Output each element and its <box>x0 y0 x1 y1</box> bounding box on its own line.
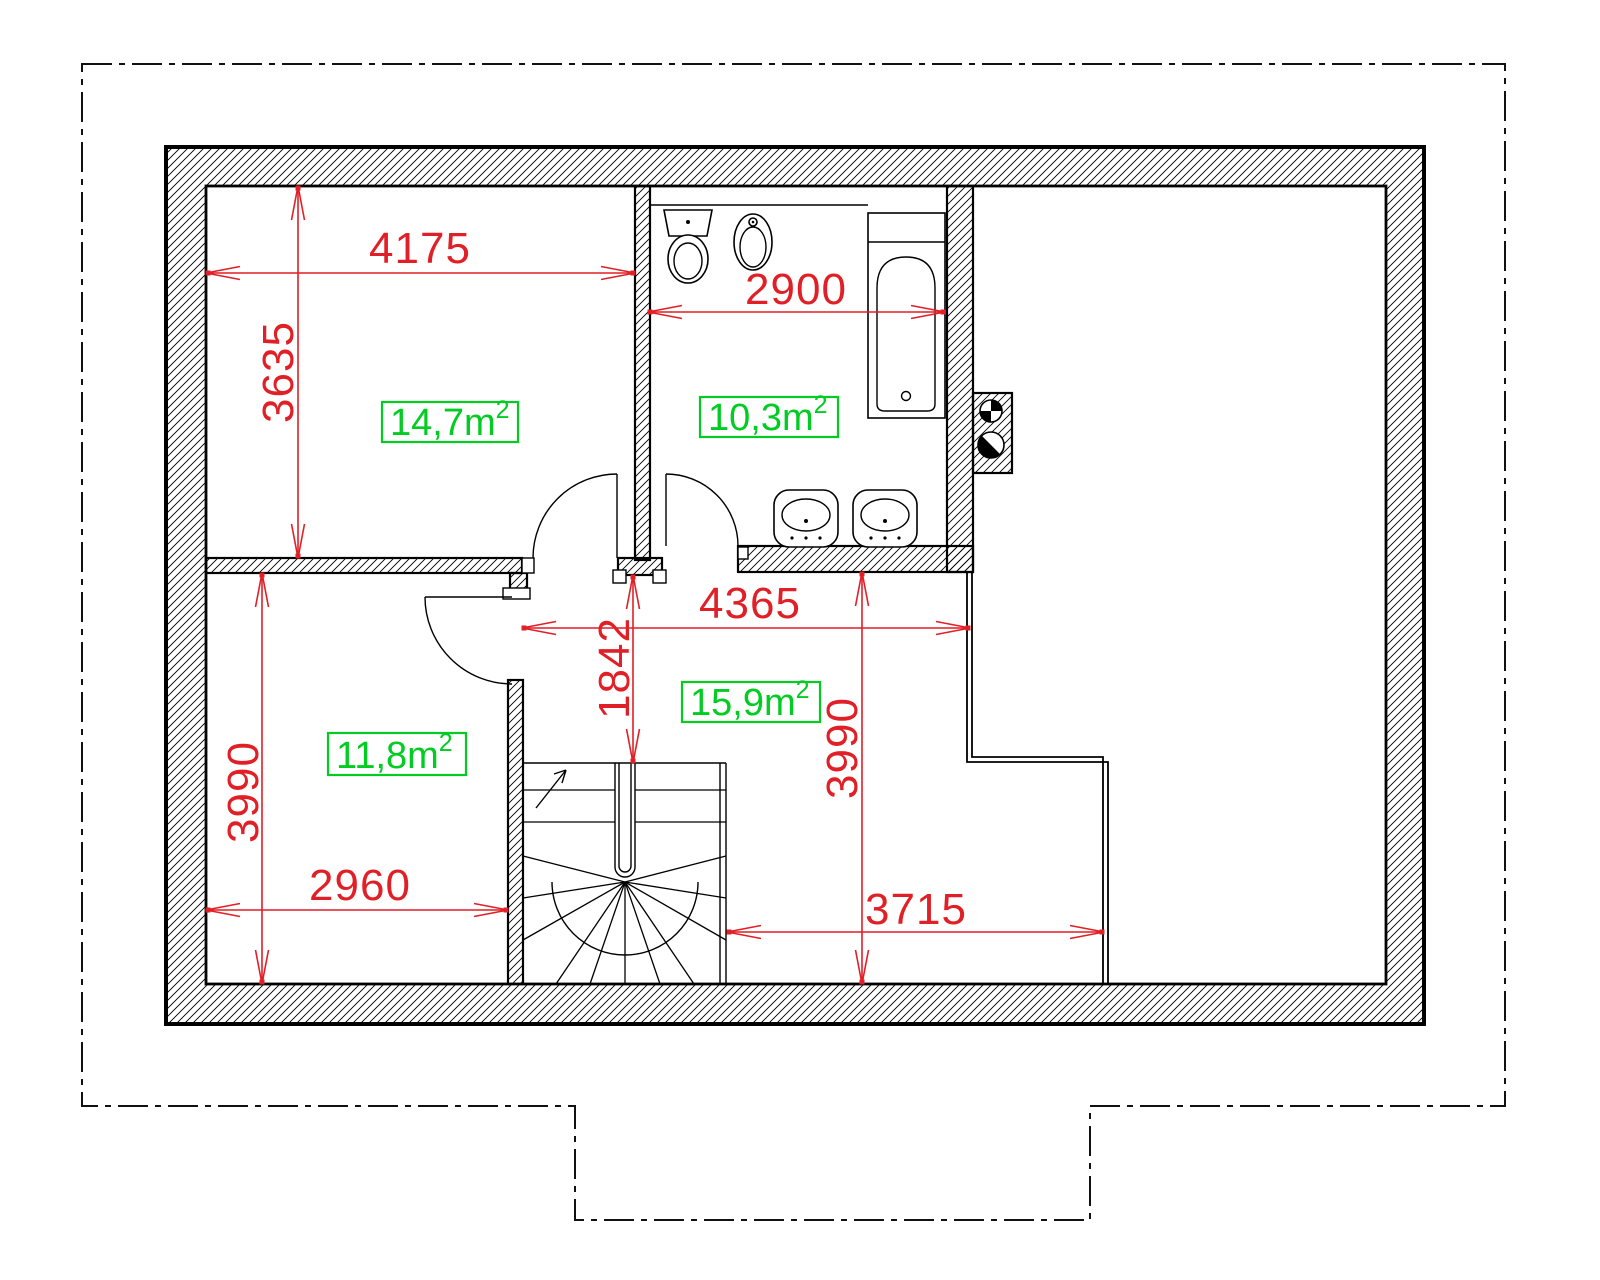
dimension-room2-depth: 3990 <box>219 573 268 984</box>
door-swing-bathroom <box>666 474 738 546</box>
stair-direction-arrow <box>536 770 566 808</box>
area-label-room-bottom-left: 11,8m2 <box>328 729 466 777</box>
dimension-room1-width: 4175 <box>206 224 635 273</box>
toilet-icon <box>664 210 712 283</box>
stair-well-slot <box>615 763 635 877</box>
area-value: 10,3m <box>708 397 814 439</box>
dimension-hall-depth: 3990 <box>818 572 867 984</box>
chimney-flue-icon <box>978 432 1004 458</box>
dim-label: 4365 <box>699 579 801 628</box>
area-label-bathroom: 10,3m2 <box>700 391 838 439</box>
dim-label: 3635 <box>254 321 303 423</box>
door-swing-room-bottom-left <box>425 597 512 684</box>
door-jamb-notch <box>653 570 666 583</box>
dim-label: 2900 <box>745 265 847 314</box>
door-jamb-notch <box>522 558 534 573</box>
dimension-room2-width: 2960 <box>206 861 508 910</box>
area-sup: 2 <box>496 396 510 424</box>
washbasin-icon <box>853 490 917 547</box>
area-label-room-top-left: 14,7m2 <box>382 396 518 444</box>
area-sup: 2 <box>439 729 453 757</box>
floor-plan-page: 4175 3635 2900 4365 1842 3990 3990 2960 <box>0 0 1600 1280</box>
washbasin-icon <box>774 490 838 547</box>
area-value: 11,8m <box>336 735 439 777</box>
wall-room1-room2 <box>206 558 522 573</box>
wall-bathroom-right <box>947 186 973 572</box>
dim-label: 4175 <box>369 224 471 273</box>
svg-text:11,8m2: 11,8m2 <box>336 729 453 777</box>
winder-staircase <box>523 763 726 984</box>
wall-room2-hall <box>508 680 523 984</box>
bidet-icon <box>734 214 772 270</box>
dimension-hall-entry-depth: 1842 <box>590 575 639 763</box>
doors <box>425 474 738 684</box>
dim-label: 2960 <box>309 861 411 910</box>
bathtub-icon <box>868 213 945 418</box>
vent-flue-icon <box>980 400 1002 422</box>
dim-label: 3990 <box>219 741 268 843</box>
wall-room1-bathroom <box>635 186 650 560</box>
dim-label: 3990 <box>818 697 867 799</box>
site-boundary-line <box>82 64 1505 1220</box>
door-jamb-notch <box>738 547 748 559</box>
bathroom-fixtures <box>664 210 945 547</box>
area-value: 15,9m <box>690 682 796 724</box>
svg-text:10,3m2: 10,3m2 <box>708 391 828 439</box>
area-sup: 2 <box>814 391 828 419</box>
area-value: 14,7m <box>390 402 496 444</box>
knee-wall <box>967 572 1108 984</box>
area-sup: 2 <box>796 676 810 704</box>
dim-label: 1842 <box>590 617 639 719</box>
area-label-hall: 15,9m2 <box>682 676 820 724</box>
dimension-hall-lower-width: 3715 <box>727 885 1104 934</box>
svg-text:15,9m2: 15,9m2 <box>690 676 810 724</box>
chimney-block <box>973 393 1012 473</box>
dimension-room1-depth: 3635 <box>254 186 303 558</box>
door-jamb-notch <box>613 570 626 583</box>
floor-plan-canvas: 4175 3635 2900 4365 1842 3990 3990 2960 <box>0 0 1600 1280</box>
dim-label: 3715 <box>865 885 967 934</box>
stair-handrail <box>619 763 631 872</box>
svg-text:14,7m2: 14,7m2 <box>390 396 510 444</box>
wall-bathroom-bottom <box>738 546 973 572</box>
door-swing-room-top-left <box>533 474 617 558</box>
